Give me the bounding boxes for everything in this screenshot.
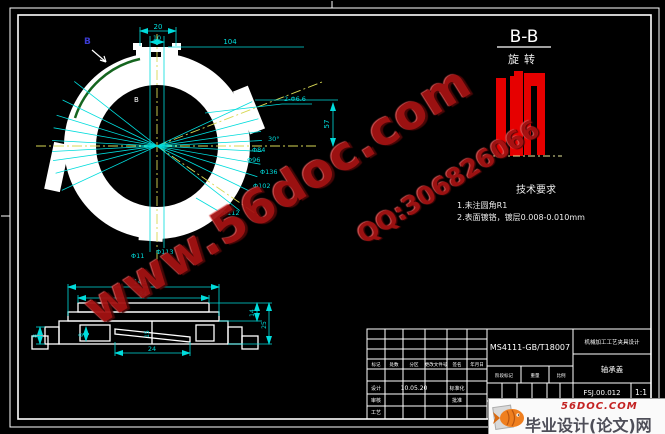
tech-req-item-2: 2.表面镀铬，镀层0.008-0.010mm — [457, 212, 585, 222]
dim-15-label: 15 — [144, 330, 151, 338]
banner-site-name[interactable]: 毕业设计(论文)网 — [525, 412, 652, 434]
rev-header-zone: 分区 — [410, 361, 419, 368]
role-standard: 标准化 — [449, 385, 464, 392]
scale-label: 比例 — [557, 372, 566, 379]
dim-24-label: 24 — [148, 345, 156, 353]
material-spec: MS4111-GB/T18007 — [490, 343, 570, 352]
dim-8b-label: 8 — [78, 333, 85, 337]
weight-label: 重量 — [531, 372, 540, 379]
dim-25-label: 25 — [261, 321, 268, 329]
rev-header-count: 处数 — [390, 361, 399, 368]
rev-header-mark: 标记 — [372, 361, 381, 368]
dim-14-label: 14 — [249, 309, 256, 317]
site-banner[interactable]: 56DOC.COM 毕业设计(论文)网 — [488, 398, 665, 434]
dim-20-label: 20 — [154, 23, 163, 31]
project-name: 机械加工工艺夹具设计 — [584, 338, 640, 346]
cad-drawing-screenshot: 20 10 104 57 30° 2-Φ6.6 Φ84 Φ96 Φ136 Φ10… — [0, 0, 665, 434]
role-check: 审核 — [371, 397, 381, 404]
drawing-number: FSJ.00.012 — [583, 389, 620, 397]
banner-domain[interactable]: 56DOC.COM — [561, 401, 638, 412]
role-design: 设计 — [371, 385, 381, 392]
holes-label: 2-Φ6.6 — [284, 95, 306, 103]
dim-10-label: 10 — [153, 34, 161, 42]
rev-header-sign: 签名 — [453, 361, 462, 368]
angle-30-label: 30° — [268, 135, 280, 143]
drawing-scale: 1:1 — [635, 388, 647, 397]
dia-84-label: Φ84 — [252, 146, 265, 154]
section-b-arrow — [92, 50, 106, 62]
section-title: B-B — [510, 27, 539, 47]
tech-req-title: 技术要求 — [516, 183, 556, 196]
stage-label: 阶段标记 — [495, 372, 513, 379]
dim-8a-label: 8 — [32, 334, 39, 338]
fish-logo — [491, 400, 527, 434]
tech-req-item-1: 1.未注圆角R1 — [457, 200, 507, 210]
drawing-date: 10.05.20 — [401, 385, 428, 392]
rev-header-doc: 更改文件号 — [425, 361, 448, 368]
rev-header-date: 年月日 — [470, 361, 484, 368]
role-process: 工艺 — [371, 410, 381, 416]
dia-96-label: Φ96 — [247, 156, 260, 164]
tech-requirements: 技术要求 1.未注圆角R1 2.表面镀铬，镀层0.008-0.010mm — [457, 183, 585, 222]
drawing-canvas: 20 10 104 57 30° 2-Φ6.6 Φ84 Φ96 Φ136 Φ10… — [0, 0, 665, 434]
dim-57-label: 57 — [323, 120, 331, 129]
section-subtitle: 旋转 — [508, 52, 540, 66]
section-b-label-outer: B — [84, 37, 91, 47]
fish-body — [500, 409, 524, 427]
part-name: 轴承盖 — [601, 364, 624, 374]
role-approve: 批准 — [452, 397, 462, 404]
top-lug-slot — [151, 52, 161, 57]
dim-104-label: 104 — [223, 38, 237, 46]
section-b-label-inner: B — [134, 96, 139, 104]
